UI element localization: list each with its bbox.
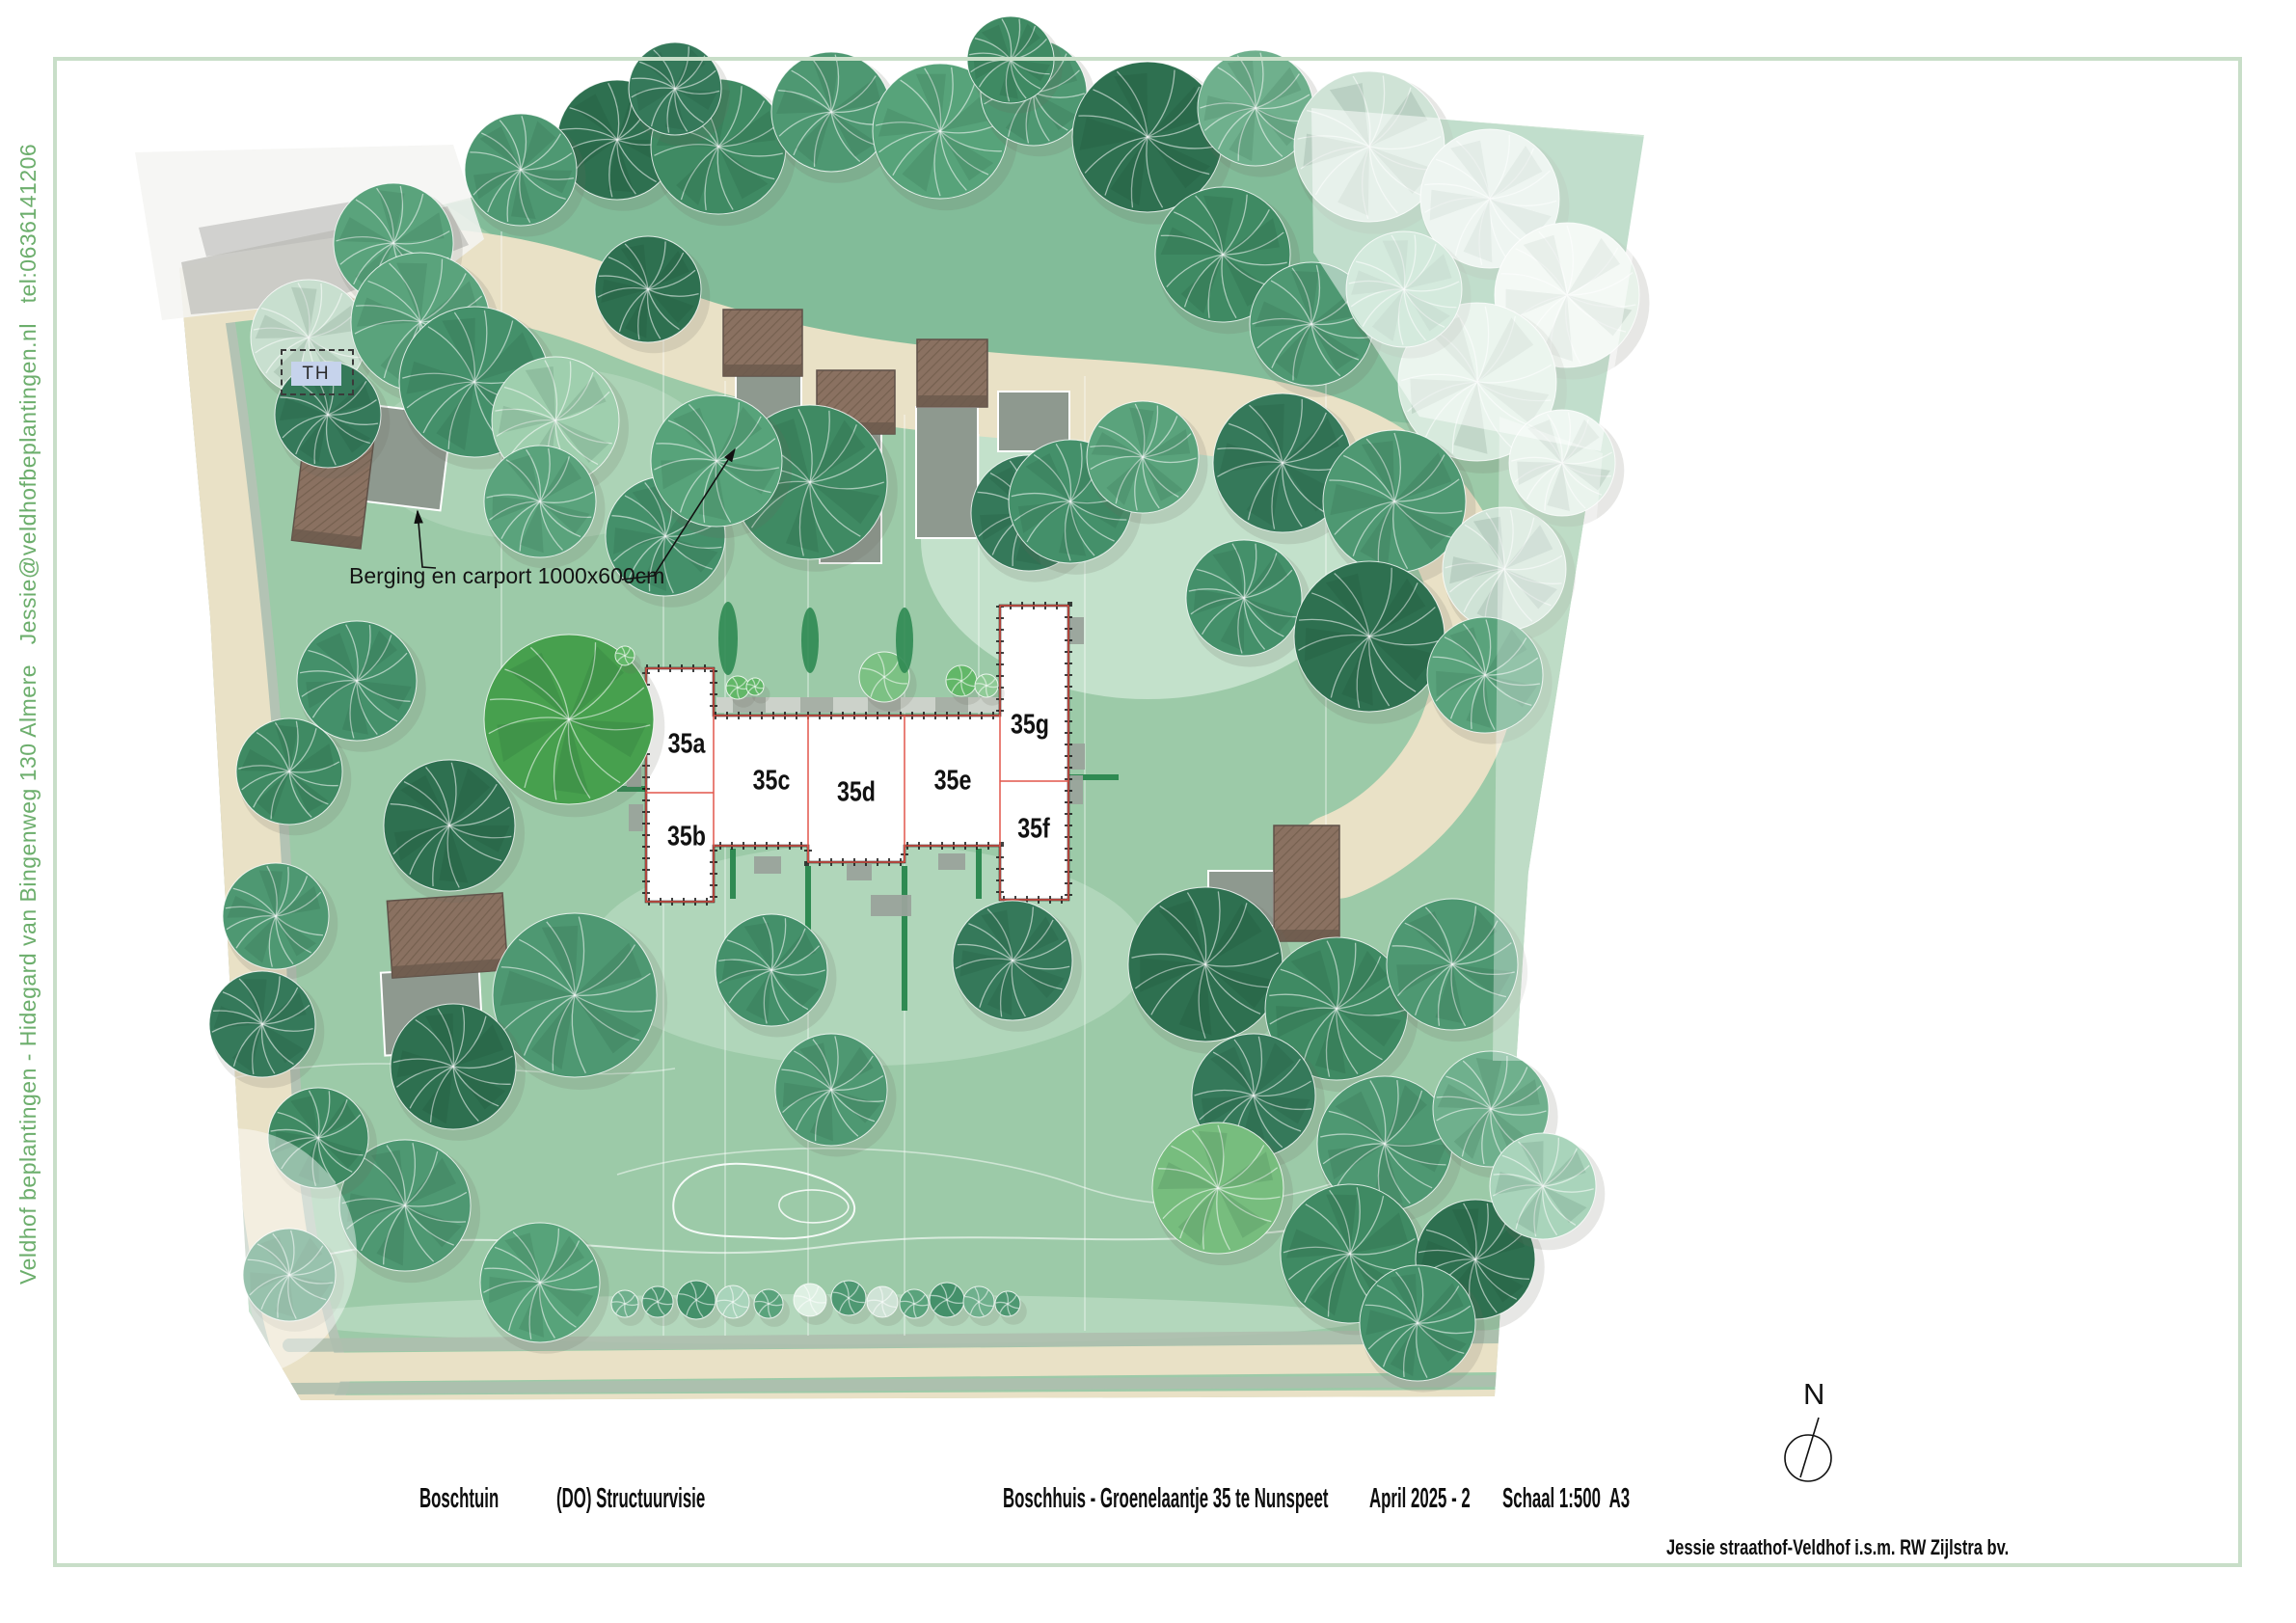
site-plan: [0, 0, 2296, 1623]
